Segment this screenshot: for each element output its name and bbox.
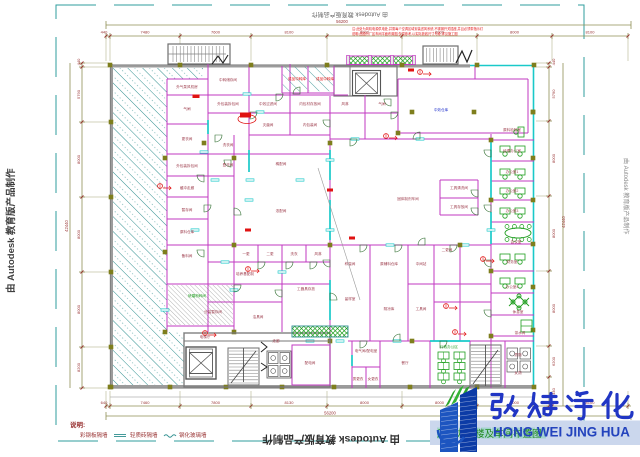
svg-text:行政办公区: 行政办公区 xyxy=(440,344,458,349)
svg-text:气闸: 气闸 xyxy=(378,101,386,106)
svg-text:暂存间: 暂存间 xyxy=(182,207,193,212)
svg-text:工具间: 工具间 xyxy=(416,306,427,311)
svg-text:工具清洗间: 工具清洗间 xyxy=(450,185,468,190)
svg-text:浓配间: 浓配间 xyxy=(276,208,287,213)
svg-text:7600: 7600 xyxy=(211,30,221,35)
svg-text:56200: 56200 xyxy=(324,411,336,416)
svg-text:注:此处为风机电源供电处,并需每个空调区域安装送风系统,不锈: 注:此处为风机电源供电处,并需每个空调区域安装送风系统,不锈钢开关插座,并且必须… xyxy=(352,26,484,31)
svg-text:由 Autodesk 教育版产品制作: 由 Autodesk 教育版产品制作 xyxy=(5,168,17,293)
svg-text:原料检验室: 原料检验室 xyxy=(503,127,521,132)
svg-text:稀配间: 稀配间 xyxy=(276,161,287,166)
svg-text:原辅料仓库: 原辅料仓库 xyxy=(380,261,398,266)
svg-text:5790: 5790 xyxy=(551,89,556,99)
svg-text:风淋: 风淋 xyxy=(341,101,349,106)
svg-text:由 Autodesk 教育版产品制作: 由 Autodesk 教育版产品制作 xyxy=(262,433,400,446)
svg-text:工具存放间: 工具存放间 xyxy=(450,204,468,209)
svg-text:8000: 8000 xyxy=(76,304,81,314)
svg-text:配电间: 配电间 xyxy=(305,360,316,365)
svg-text:办公室1: 办公室1 xyxy=(506,169,519,174)
svg-text:由 Autodesk 教育版产品制作: 由 Autodesk 教育版产品制作 xyxy=(622,158,630,234)
svg-text:7800: 7800 xyxy=(211,400,221,405)
svg-text:男更衣: 男更衣 xyxy=(353,376,364,381)
svg-text:女厕: 女厕 xyxy=(514,370,522,375)
svg-text:8100: 8100 xyxy=(586,30,596,35)
svg-text:餐厅: 餐厅 xyxy=(401,360,409,365)
svg-text:灭菌间: 灭菌间 xyxy=(263,122,274,127)
svg-text:由 Autodesk 教育版产品制作: 由 Autodesk 教育版产品制作 xyxy=(312,11,388,19)
svg-text:7480: 7480 xyxy=(141,30,151,35)
svg-text:外包装拆包间: 外包装拆包间 xyxy=(217,101,239,106)
svg-text:休息室: 休息室 xyxy=(513,309,524,314)
svg-text:440: 440 xyxy=(551,58,556,65)
svg-text:8000: 8000 xyxy=(510,30,520,35)
svg-text:备料间: 备料间 xyxy=(182,253,193,258)
svg-text:说明:此图为厂区车间平面布置图,仅供参考,以实际放线尺寸为准: 说明:此图为厂区车间平面布置图,仅供参考,以实际放线尺寸为准,详见施工图 xyxy=(352,31,458,36)
svg-text:缓冲走廊: 缓冲走廊 xyxy=(180,185,195,190)
svg-text:7460: 7460 xyxy=(141,400,151,405)
svg-text:8000: 8000 xyxy=(551,153,556,163)
svg-text:分装暂存间: 分装暂存间 xyxy=(204,309,222,314)
svg-text:叠衣间: 叠衣间 xyxy=(223,162,234,167)
svg-text:56200: 56200 xyxy=(336,19,348,24)
svg-text:8100: 8100 xyxy=(285,30,295,35)
svg-text:工器具存放: 工器具存放 xyxy=(297,286,315,291)
svg-text:成品中转库: 成品中转库 xyxy=(288,76,306,81)
svg-text:42440: 42440 xyxy=(561,216,566,228)
svg-text:8200: 8200 xyxy=(76,362,81,372)
svg-text:8000: 8000 xyxy=(551,228,556,238)
svg-text:440: 440 xyxy=(101,30,108,35)
svg-text:说明:: 说明: xyxy=(70,420,85,429)
svg-text:外包装拆包间: 外包装拆包间 xyxy=(176,163,198,168)
svg-text:原料仓库: 原料仓库 xyxy=(180,229,195,234)
svg-text:研磨粉碎间: 研磨粉碎间 xyxy=(188,293,206,298)
svg-text:二更间: 二更间 xyxy=(442,247,453,252)
svg-text:电气间/配电室: 电气间/配电室 xyxy=(355,348,378,353)
svg-text:茶水间: 茶水间 xyxy=(515,330,526,335)
svg-text:经理办公室: 经理办公室 xyxy=(503,148,521,153)
svg-text:外气泵风机房: 外气泵风机房 xyxy=(176,84,198,89)
svg-text:男厕: 男厕 xyxy=(514,352,522,357)
svg-text:中间站: 中间站 xyxy=(416,261,427,266)
svg-text:42440: 42440 xyxy=(64,220,69,232)
svg-text:会议室: 会议室 xyxy=(511,239,522,244)
svg-text:气闸: 气闸 xyxy=(183,106,191,111)
svg-text:更衣间: 更衣间 xyxy=(182,136,193,141)
svg-text:HONG WEI JING HUA: HONG WEI JING HUA xyxy=(493,425,630,440)
svg-text:办公室3: 办公室3 xyxy=(506,208,519,213)
svg-text:留样室: 留样室 xyxy=(345,296,356,301)
svg-text:8000: 8000 xyxy=(76,154,81,164)
svg-text:风淋: 风淋 xyxy=(314,251,322,256)
svg-text:8130: 8130 xyxy=(285,400,295,405)
svg-text:钢化玻璃墙: 钢化玻璃墙 xyxy=(179,431,207,439)
svg-text:6200: 6200 xyxy=(551,356,556,366)
svg-text:培养基配制: 培养基配制 xyxy=(236,271,254,276)
svg-text:一更: 一更 xyxy=(242,251,250,256)
svg-text:阴凉库: 阴凉库 xyxy=(384,306,395,311)
svg-text:中效仓库: 中效仓库 xyxy=(434,107,449,112)
svg-text:中效过滤间: 中效过滤间 xyxy=(259,101,277,106)
svg-text:财务室: 财务室 xyxy=(507,259,518,264)
svg-text:640: 640 xyxy=(101,400,108,405)
svg-text:走廊: 走廊 xyxy=(272,338,280,343)
svg-text:二更: 二更 xyxy=(266,251,274,256)
svg-text:8000: 8000 xyxy=(360,400,370,405)
svg-text:彩钢板隔墙: 彩钢板隔墙 xyxy=(80,431,108,439)
svg-text:8000: 8000 xyxy=(551,303,556,313)
svg-text:洗衣: 洗衣 xyxy=(290,251,298,256)
svg-text:固体制剂车间: 固体制剂车间 xyxy=(397,196,419,201)
svg-text:称量间: 称量间 xyxy=(345,261,356,266)
svg-text:8000: 8000 xyxy=(76,229,81,239)
svg-text:女更衣: 女更衣 xyxy=(368,376,379,381)
svg-text:办公室2: 办公室2 xyxy=(506,188,519,193)
svg-text:轻质砖隔墙: 轻质砖隔墙 xyxy=(130,431,158,439)
svg-text:中转储存间: 中转储存间 xyxy=(219,77,237,82)
svg-text:办公室4: 办公室4 xyxy=(506,284,519,289)
svg-text:内包材存放间: 内包材存放间 xyxy=(299,101,321,106)
svg-text:成品中转库: 成品中转库 xyxy=(316,76,334,81)
svg-text:440: 440 xyxy=(76,58,81,65)
svg-text:电梯厅: 电梯厅 xyxy=(200,334,211,339)
svg-text:洗衣间: 洗衣间 xyxy=(223,142,234,147)
svg-text:洁具间: 洁具间 xyxy=(253,314,264,319)
svg-text:内包装间: 内包装间 xyxy=(303,122,318,127)
svg-text:8000: 8000 xyxy=(435,400,445,405)
svg-text:5790: 5790 xyxy=(76,89,81,99)
